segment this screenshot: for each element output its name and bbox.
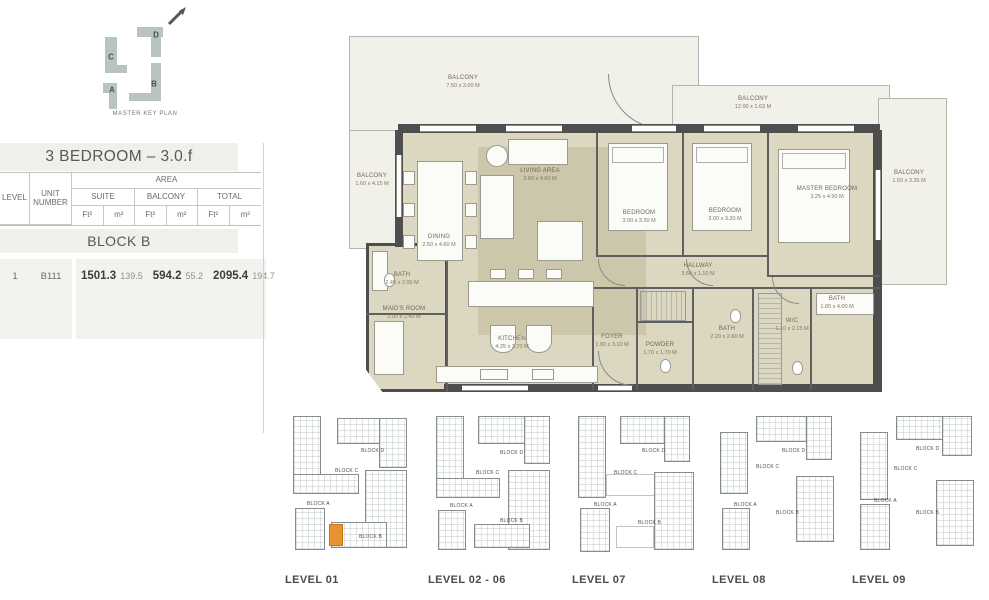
level-block xyxy=(474,524,530,548)
level-block xyxy=(524,416,550,464)
level-block-label: BLOCK A xyxy=(734,502,757,508)
level-block xyxy=(654,472,694,550)
level-block xyxy=(860,432,888,500)
level-block-label: BLOCK D xyxy=(500,450,523,456)
balcony-right xyxy=(878,98,947,285)
keyplan-letter-a: A xyxy=(109,86,115,95)
wall-foyer-powder xyxy=(636,289,638,390)
level-caption: LEVEL 09 xyxy=(852,574,906,586)
entry-door-gap xyxy=(598,385,632,391)
level-block-label: BLOCK C xyxy=(335,468,358,474)
wall-living-bedroom1 xyxy=(596,133,598,257)
room-label: BALCONY12.00 x 1.63 M xyxy=(735,96,771,110)
level-block-label: BLOCK B xyxy=(916,510,939,516)
level-block-label: BLOCK D xyxy=(916,446,939,452)
level-map: BLOCK DBLOCK CBLOCK ABLOCK B xyxy=(285,408,420,568)
col-level: LEVEL xyxy=(0,173,30,225)
page-title: 3 BEDROOM – 3.0.f xyxy=(0,143,238,171)
table-row-values: 1501.3139.5 594.255.2 2095.4194.7 xyxy=(76,259,266,339)
level-map: BLOCK DBLOCK CBLOCK ABLOCK B xyxy=(712,408,847,568)
level-block xyxy=(936,480,974,546)
window xyxy=(875,170,881,240)
col-total: TOTAL xyxy=(198,189,261,206)
room-label: BALCONY1.50 x 3.35 M xyxy=(892,170,925,184)
block-title: BLOCK B xyxy=(0,229,238,253)
keyplan-letter-d: D xyxy=(153,31,159,40)
level-block-label: BLOCK C xyxy=(756,464,779,470)
room-label: BATH2.45 x 2.00 M xyxy=(385,272,418,286)
keyplan-shape-c-foot xyxy=(105,65,127,73)
level-map: BLOCK DBLOCK CBLOCK ABLOCK B xyxy=(852,408,987,568)
keyplan-letter-b: B xyxy=(151,80,157,89)
col-area: AREA xyxy=(72,173,261,189)
level-panel-09: BLOCK DBLOCK CBLOCK ABLOCK BLEVEL 09 xyxy=(852,408,987,598)
row-unit: B111 xyxy=(30,271,72,339)
level-block xyxy=(580,508,610,552)
suite-ft-value: 1501.3 xyxy=(81,270,116,282)
level-block xyxy=(379,418,407,468)
level-block-label: BLOCK A xyxy=(307,501,330,507)
room-label: W/C1.10 x 2.15 M xyxy=(775,318,808,332)
table-row-id: 1 B111 xyxy=(0,259,72,339)
wall-bedroom1-bedroom2 xyxy=(682,133,684,257)
room-label: BATH2.20 x 2.60 M xyxy=(710,326,743,340)
room-label: LIVING AREA3.60 x 4.60 M xyxy=(520,168,560,182)
unit-ft: Ft² xyxy=(198,206,230,225)
level-block xyxy=(796,476,834,542)
room-label: BATH1.80 x 4.00 M xyxy=(820,296,853,310)
kitchen-counter xyxy=(436,366,598,383)
sofa xyxy=(480,175,514,239)
level-block xyxy=(720,432,748,494)
level-block xyxy=(436,478,500,498)
level-block-label: BLOCK B xyxy=(359,534,382,540)
wall-hallway-south xyxy=(570,287,880,289)
main-floor-plan: BALCONY7.50 x 3.00 MBALCONY12.00 x 1.63 … xyxy=(340,25,989,407)
row-level: 1 xyxy=(0,271,30,339)
level-block-label: BLOCK B xyxy=(638,520,661,526)
window xyxy=(632,125,676,132)
coffee-table xyxy=(537,221,583,261)
level-block xyxy=(806,416,832,460)
level-block xyxy=(438,510,466,550)
wall-bedroom2-master xyxy=(767,133,769,275)
room-label: BALCONY1.60 x 4.15 M xyxy=(355,173,388,187)
room-label: DINING2.50 x 4.60 M xyxy=(422,234,455,248)
toilet xyxy=(792,361,803,375)
room-label: HALLWAY3.50 x 1.10 M xyxy=(681,263,714,277)
wall-bath-wc xyxy=(752,289,754,390)
level-block-label: BLOCK A xyxy=(874,498,897,504)
toilet xyxy=(730,309,741,323)
dining-chair xyxy=(403,203,415,217)
level-block xyxy=(664,416,690,462)
level-block-label: BLOCK A xyxy=(450,503,473,509)
keyplan-caption: MASTER KEY PLAN xyxy=(85,111,205,117)
window xyxy=(704,125,760,132)
balcony-left xyxy=(349,130,400,249)
window xyxy=(396,155,402,217)
foyer-closet xyxy=(640,291,686,321)
level-caption: LEVEL 01 xyxy=(285,574,339,586)
wall-bedrooms-hallway xyxy=(596,255,769,257)
level-panel-01: BLOCK DBLOCK CBLOCK ABLOCK BLEVEL 01 xyxy=(285,408,420,598)
bar-stool xyxy=(490,269,506,279)
level-roof xyxy=(606,474,660,496)
level-block-label: BLOCK C xyxy=(614,470,637,476)
level-block xyxy=(942,416,972,456)
dining-chair xyxy=(465,203,477,217)
level-caption: LEVEL 02 - 06 xyxy=(428,574,506,586)
level-caption: LEVEL 07 xyxy=(572,574,626,586)
decor-lamp xyxy=(486,145,508,167)
room-label: POWDER1.70 x 1.70 M xyxy=(643,342,676,356)
dining-chair xyxy=(403,235,415,249)
balcony-ft-value: 594.2 xyxy=(153,270,182,282)
level-block-label: BLOCK A xyxy=(594,502,617,508)
keyplan-shape-b-foot xyxy=(129,93,161,101)
bar-stool xyxy=(518,269,534,279)
level-map: BLOCK DBLOCK CBLOCK ABLOCK B xyxy=(572,408,707,568)
room-label: KITCHEN4.25 x 3.70 M xyxy=(495,336,528,350)
dining-chair xyxy=(403,171,415,185)
level-block xyxy=(860,504,890,550)
level-panel-07: BLOCK DBLOCK CBLOCK ABLOCK BLEVEL 07 xyxy=(572,408,707,598)
level-block-label: BLOCK B xyxy=(776,510,799,516)
stove xyxy=(480,369,508,380)
level-block-label: BLOCK B xyxy=(500,518,523,524)
floorplan-sheet: { "colors":{"accent_orange":"#e8932f","p… xyxy=(0,0,989,600)
balcony-m-value: 55.2 xyxy=(186,271,204,281)
room-label: BALCONY7.50 x 3.00 M xyxy=(446,75,479,89)
level-block xyxy=(295,508,325,550)
level-block-label: BLOCK D xyxy=(361,448,384,454)
north-arrow-icon xyxy=(165,5,191,27)
unit-m: m² xyxy=(167,206,199,225)
armchair xyxy=(526,325,552,353)
toilet xyxy=(660,359,671,373)
level-block xyxy=(293,474,359,494)
wall-powder-north xyxy=(636,321,692,323)
room-label: FOYER1.00 x 3.10 M xyxy=(595,334,628,348)
area-table-header: LEVEL UNIT NUMBER AREA SUITE BALCONY TOT… xyxy=(0,172,261,226)
window xyxy=(798,125,854,132)
window xyxy=(462,385,528,391)
maid-bed xyxy=(374,321,404,375)
suite-m-value: 139.5 xyxy=(120,271,143,281)
level-block xyxy=(722,508,750,550)
level-caption: LEVEL 08 xyxy=(712,574,766,586)
window xyxy=(506,125,562,132)
col-unit-number: UNIT NUMBER xyxy=(30,173,72,225)
window xyxy=(420,125,476,132)
unit-ft: Ft² xyxy=(135,206,167,225)
level-block xyxy=(578,416,606,498)
wall-powder-bath xyxy=(692,289,694,390)
kitchen-island xyxy=(468,281,594,307)
unit-ft: Ft² xyxy=(72,206,104,225)
room-label: MASTER BEDROOM3.25 x 4.90 M xyxy=(797,186,857,200)
master-key-plan: A B C D MASTER KEY PLAN xyxy=(85,5,215,130)
level-block-label: BLOCK C xyxy=(894,466,917,472)
level-roof xyxy=(616,526,654,548)
dining-chair xyxy=(465,235,477,249)
wardrobe xyxy=(758,293,782,385)
level-panel-02-06: BLOCK DBLOCK CBLOCK ABLOCK BLEVEL 02 - 0… xyxy=(428,408,563,598)
wall-wc-masterbath xyxy=(810,289,812,390)
panel-divider-line xyxy=(263,143,264,433)
level-map: BLOCK DBLOCK CBLOCK ABLOCK B xyxy=(428,408,563,568)
level-block-label: BLOCK D xyxy=(642,448,665,454)
level-block-label: BLOCK D xyxy=(782,448,805,454)
room-label: MAID'S ROOM2.00 x 2.40 M xyxy=(383,306,426,320)
keyplan-letter-c: C xyxy=(108,53,114,62)
room-label: BEDROOM3.00 x 3.30 M xyxy=(622,210,655,224)
room-label: BEDROOM3.00 x 3.30 M xyxy=(708,208,741,222)
col-suite: SUITE xyxy=(72,189,135,206)
tv-console xyxy=(508,139,568,165)
level-block-label: BLOCK C xyxy=(476,470,499,476)
bar-stool xyxy=(546,269,562,279)
highlighted-unit xyxy=(329,524,343,546)
dining-chair xyxy=(465,171,477,185)
level-panel-08: BLOCK DBLOCK CBLOCK ABLOCK BLEVEL 08 xyxy=(712,408,847,598)
unit-m: m² xyxy=(104,206,136,225)
sink xyxy=(532,369,554,380)
total-ft-value: 2095.4 xyxy=(213,270,248,282)
unit-m: m² xyxy=(230,206,262,225)
col-balcony: BALCONY xyxy=(135,189,198,206)
